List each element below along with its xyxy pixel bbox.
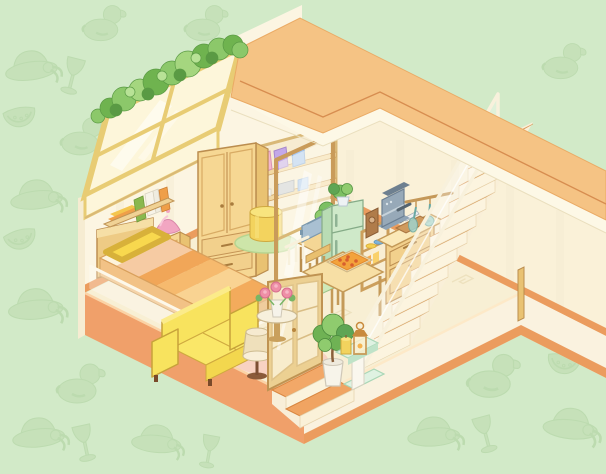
rose-center [285,290,289,294]
lantern-flame [358,344,363,349]
grinder-dial [369,217,375,223]
isometric-room-svg [0,0,606,474]
espresso-button [386,203,388,205]
corner-post [518,267,524,321]
yellow-plate [366,244,376,248]
door-knob [292,328,296,332]
plant-leaves [342,184,353,195]
toaster-lever [300,230,303,235]
espresso-button [390,201,392,203]
fridge-handle [335,214,338,227]
rose-center [274,284,278,288]
rose-center [263,290,267,294]
plant-leaves [329,184,340,195]
spatula [409,218,418,232]
room-scene [0,0,606,474]
candle [341,339,351,354]
door-glass-right [297,281,318,366]
plant-pot [337,197,349,206]
wardrobe-knob [230,202,234,206]
wardrobe-knob [220,204,224,208]
floor-lamp-shade-bottom [243,351,271,361]
floor-lamp-shade-top [246,328,268,336]
